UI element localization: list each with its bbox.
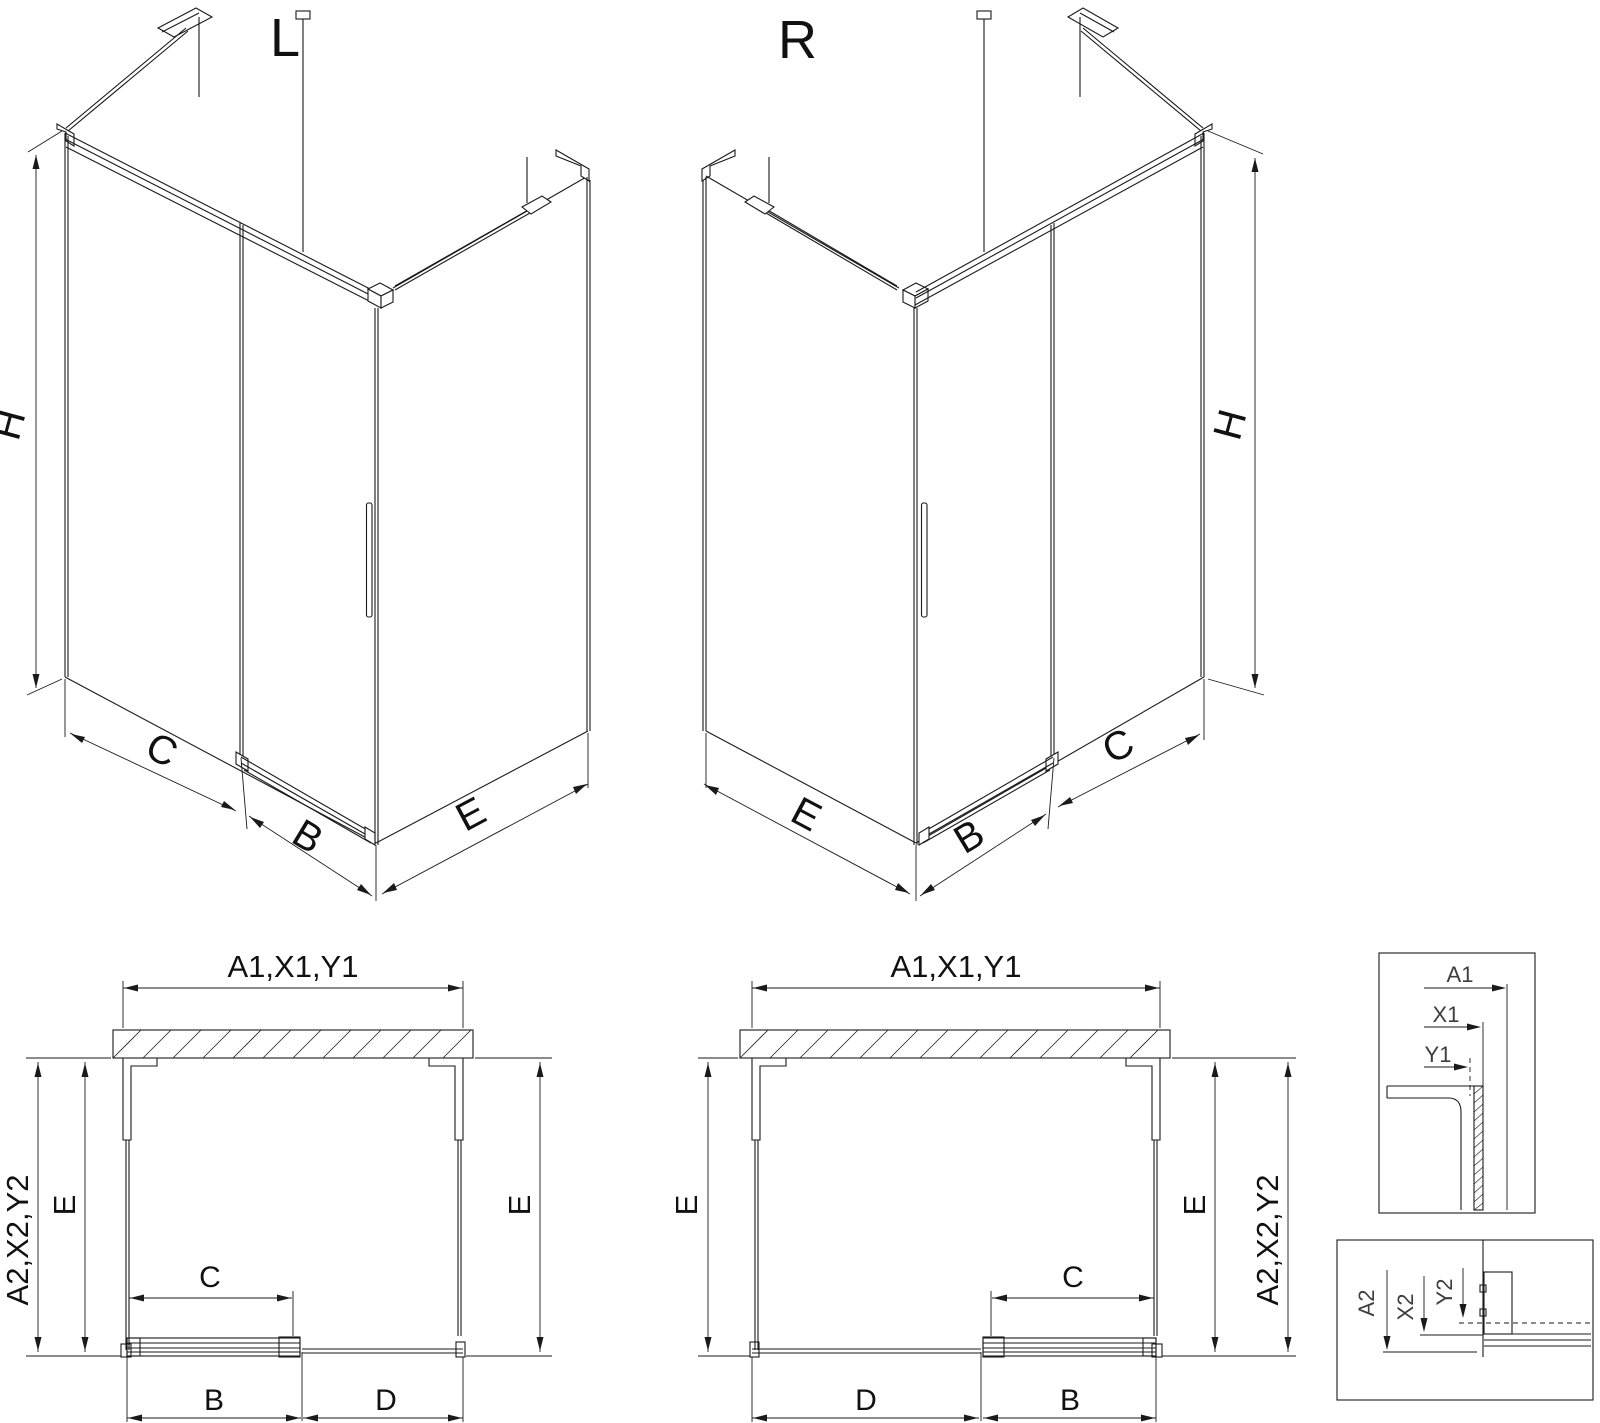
glass-wall-door-side	[57, 124, 377, 843]
dimension-C: C	[129, 1261, 293, 1336]
dimension-A1-top: A1,X1,Y1	[123, 949, 463, 1028]
iso-view-left: L	[0, 8, 590, 901]
dim-label-B: B	[285, 811, 331, 862]
ceiling-support-left-wall	[66, 8, 212, 131]
dim-label-E: E	[449, 789, 493, 840]
glass-panel-section	[1474, 1086, 1483, 1210]
dim-label-D: D	[855, 1384, 877, 1417]
dim-label-A2X2Y2: A2,X2,Y2	[0, 1175, 35, 1306]
glass-wall-return-side	[376, 150, 590, 843]
dim-label-A1X1Y1: A1,X1,Y1	[228, 949, 359, 984]
door-handle[interactable]	[922, 503, 928, 617]
dim-label-C: C	[199, 1261, 221, 1294]
detail-view-glass-profile: A1 X1 Y1	[1379, 953, 1535, 1213]
dim-label-E-right: E	[1177, 1195, 1212, 1216]
dim-label-E-left: E	[47, 1195, 82, 1216]
dimension-height-left: H	[0, 131, 62, 695]
dim-label-E-left: E	[669, 1195, 704, 1216]
dimension-E-right: E	[466, 1058, 552, 1356]
side-glass-left	[121, 1058, 157, 1357]
view-title-right: R	[778, 10, 817, 70]
sliding-door-plan	[752, 1337, 1156, 1421]
door-bottom-track	[919, 752, 1058, 845]
dimension-C: C	[991, 1261, 1154, 1336]
glass-wall-door-side	[915, 124, 1212, 843]
detail-label-X1: X1	[1433, 1002, 1460, 1027]
dimension-E-A2-right: E A2,X2,Y2	[1162, 1058, 1296, 1356]
glass-wall-return-side	[702, 150, 916, 843]
wall-profile-section	[1387, 1086, 1474, 1210]
ceiling-support-rod	[977, 11, 991, 252]
sliding-door-plan	[127, 1337, 463, 1421]
iso-view-right: R	[702, 8, 1264, 901]
dimension-A1-top: A1,X1,Y1	[752, 949, 1160, 1028]
wall-profile-back-right	[556, 150, 589, 181]
detail-view-floor-profile: A2 X2 Y2	[1337, 1240, 1593, 1400]
dim-label-H: H	[1205, 405, 1255, 444]
dimension-D-B-bottom: D B	[752, 1357, 1156, 1422]
dimension-bottom-right-view: E B C	[704, 679, 1204, 901]
dim-label-D: D	[375, 1384, 397, 1417]
detail-label-A2: A2	[1354, 1290, 1379, 1317]
detail-label-Y1: Y1	[1425, 1042, 1452, 1067]
side-glass-right	[429, 1058, 465, 1357]
dim-label-B: B	[1060, 1384, 1080, 1417]
dimension-A2-left: A2,X2,Y2 E	[0, 1058, 121, 1356]
track-profile-section	[1480, 1272, 1591, 1346]
plan-view-right: A1,X1,Y1 E E A2,X2,Y2 C	[669, 949, 1296, 1422]
shower-enclosure-technical-drawing: L	[0, 0, 1600, 1423]
dimension-B-D-bottom: B D	[127, 1357, 463, 1422]
side-glass-left	[750, 1058, 786, 1357]
door-handle[interactable]	[367, 503, 373, 617]
dimension-E-left: E	[669, 1058, 750, 1356]
dim-label-B: B	[204, 1384, 224, 1417]
detail-label-A1: A1	[1447, 962, 1474, 987]
dimension-height-right: H	[1205, 131, 1264, 695]
dim-label-E: E	[784, 789, 828, 840]
wall-section-hatched	[740, 1030, 1170, 1058]
dim-label-H: H	[0, 405, 34, 444]
dim-label-C: C	[1096, 720, 1141, 772]
drawing-sheet: L	[0, 0, 1600, 1423]
dim-label-E-right: E	[502, 1195, 537, 1216]
dim-label-A1X1Y1: A1,X1,Y1	[891, 949, 1022, 984]
detail-label-X2: X2	[1393, 1294, 1418, 1321]
dim-label-B: B	[947, 811, 993, 862]
wall-section-hatched	[113, 1030, 473, 1058]
detail-label-Y2: Y2	[1432, 1279, 1457, 1306]
plan-view-left: A1,X1,Y1 A2,X2,Y2 E E	[0, 949, 552, 1422]
ceiling-support-right-wall	[1068, 8, 1203, 131]
dim-label-C: C	[1062, 1261, 1084, 1294]
dim-label-A2X2Y2: A2,X2,Y2	[1250, 1175, 1285, 1306]
dimension-bottom-left-view: C B E	[65, 679, 588, 901]
side-glass-right	[1126, 1058, 1162, 1357]
